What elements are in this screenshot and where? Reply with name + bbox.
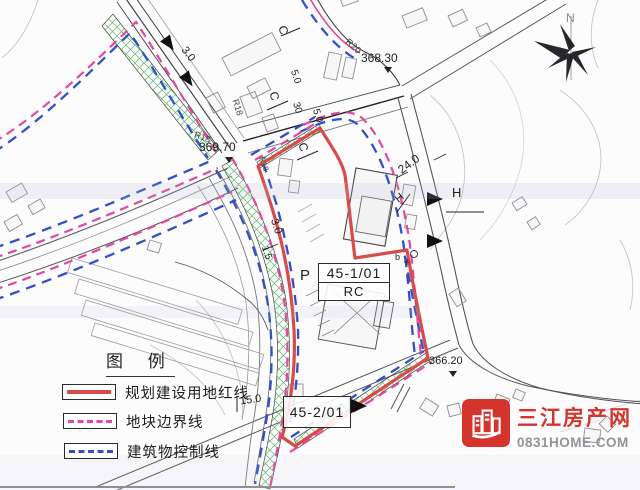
utility-circle bbox=[411, 251, 418, 258]
legend-label: 地块边界线 bbox=[126, 411, 204, 432]
parcel-code: 45-1/01 bbox=[319, 264, 389, 282]
parking-label: P bbox=[300, 268, 310, 283]
logo-site-name: 三江房产网 bbox=[517, 402, 632, 432]
scan-edge-line bbox=[0, 486, 455, 488]
watermark-logo: 三江房产网 0831HOME.COM bbox=[462, 399, 632, 450]
point-label: b bbox=[395, 253, 400, 262]
legend-swatch-pink bbox=[63, 413, 117, 429]
parcel-code: 45-2/01 bbox=[284, 397, 350, 427]
elevation-label: 368.30 bbox=[361, 52, 398, 64]
terrain-lines bbox=[2, 0, 640, 432]
elevation-label: 366.20 bbox=[429, 356, 463, 367]
legend-label: 建筑物控制线 bbox=[127, 441, 220, 462]
section-label: H bbox=[452, 186, 461, 199]
north-label: N bbox=[566, 12, 575, 24]
parcel-box-45-1-01: 45-1/01 RC bbox=[318, 263, 390, 301]
legend-title: 图 例 bbox=[106, 347, 175, 377]
site-plan-scan: 368.30 369.70 366.20 R20 R18 R18 R18 C C… bbox=[0, 0, 640, 490]
buildings bbox=[4, 0, 615, 443]
legend-item-pink-line: 地块边界线 bbox=[63, 413, 204, 429]
legend-item-red-line: 规划建设用地红线 bbox=[62, 384, 249, 400]
parcel-type: RC bbox=[319, 282, 389, 301]
legend-item-blue-line: 建筑物控制线 bbox=[64, 443, 220, 459]
legend-swatch-red bbox=[62, 384, 116, 400]
road-hash-marks bbox=[391, 384, 410, 412]
legend-swatch-blue bbox=[64, 443, 118, 459]
north-compass-icon bbox=[534, 16, 596, 82]
legend-label: 规划建设用地红线 bbox=[125, 382, 249, 403]
buildings-icon bbox=[462, 399, 510, 447]
logo-site-url: 0831HOME.COM bbox=[517, 435, 632, 450]
parcel-box-45-2-01: 45-2/01 bbox=[283, 396, 351, 428]
